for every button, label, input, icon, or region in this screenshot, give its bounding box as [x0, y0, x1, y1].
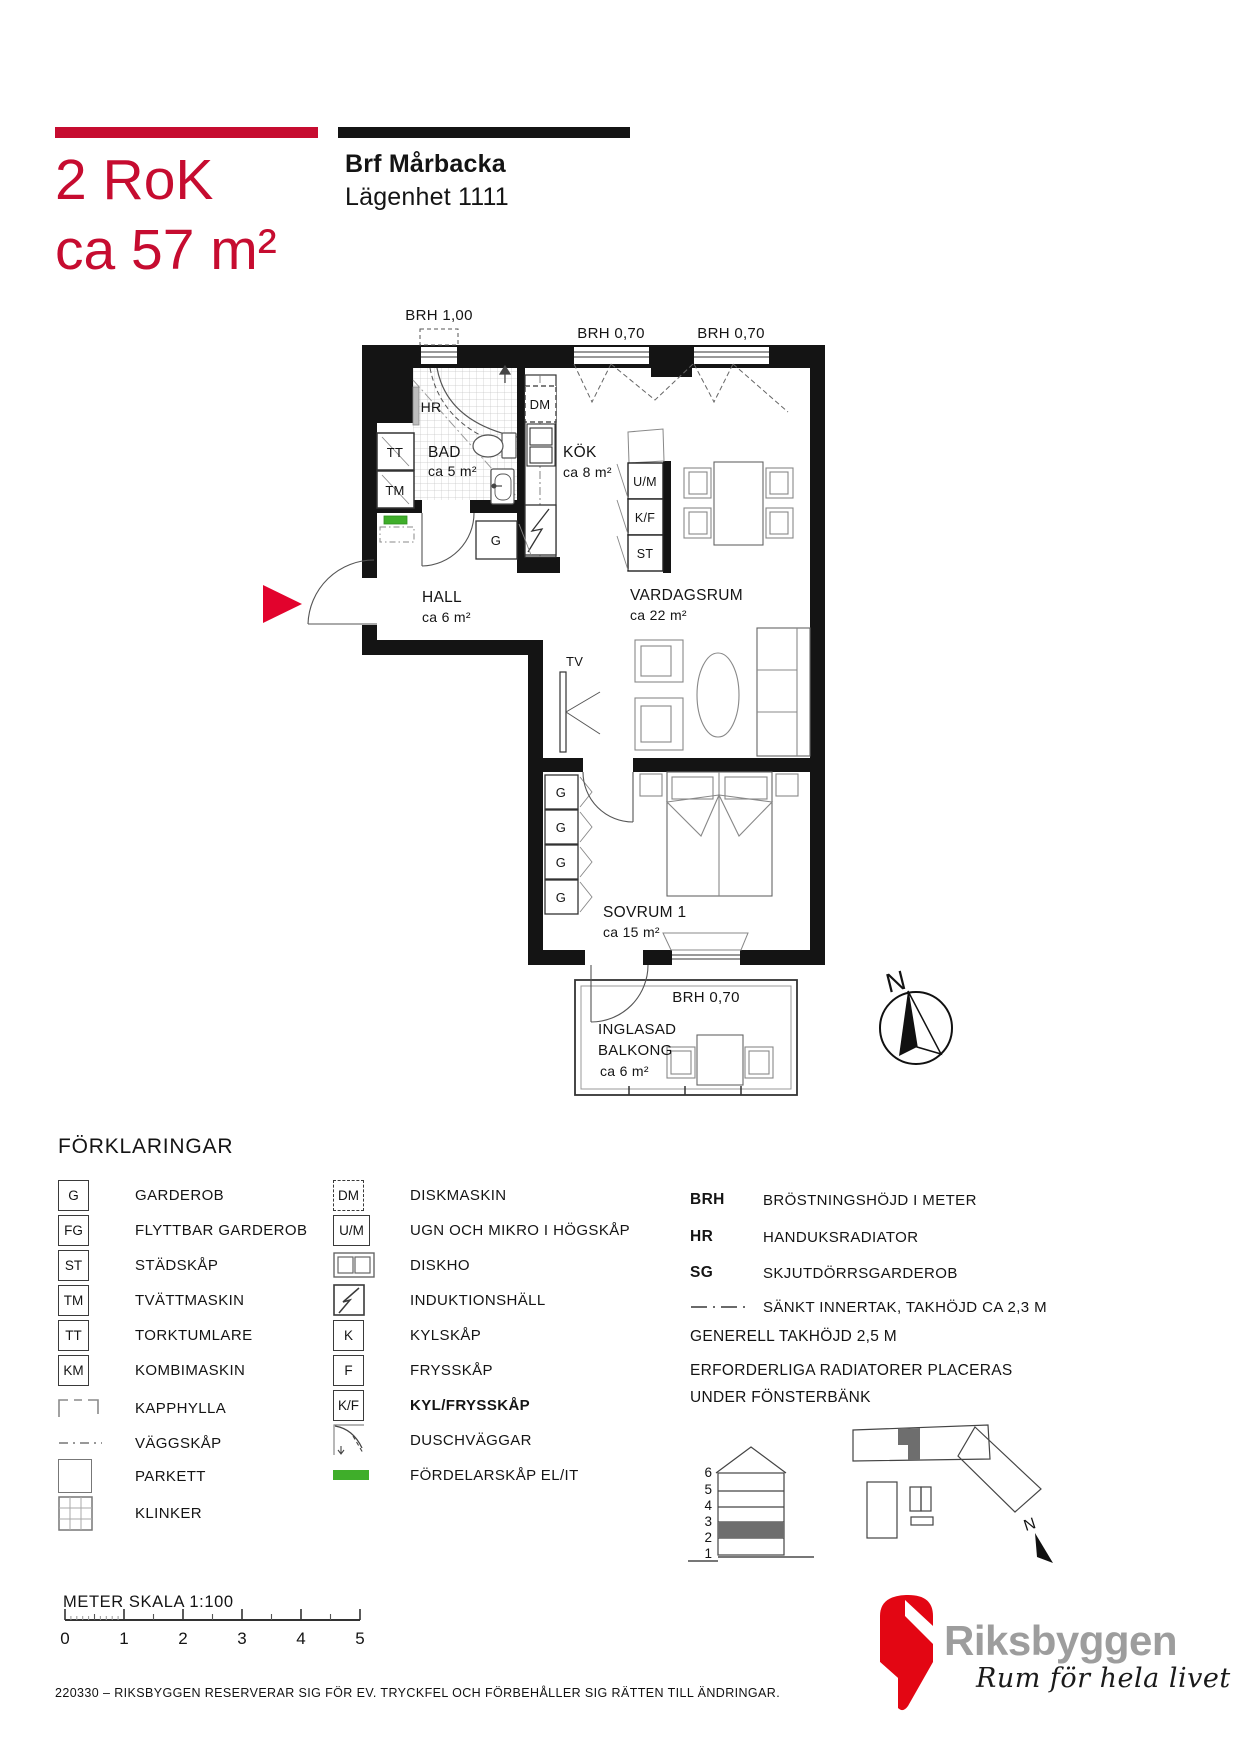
legend-label: SÄNKT INNERTAK, TAKHÖJD CA 2,3 M: [763, 1299, 1047, 1316]
site-buildings: [853, 1425, 1041, 1538]
room-name-hall: HALL: [422, 589, 462, 606]
legend-label: DISKHO: [410, 1257, 470, 1274]
scale-tick-4: 4: [296, 1629, 305, 1648]
compass: N: [880, 965, 952, 1064]
legend-item-fordelarskap: FÖRDELARSKÅP EL/IT: [333, 1458, 579, 1492]
note-radiators-2: UNDER FÖNSTERBÄNK: [690, 1389, 871, 1407]
compass-north-label: N: [883, 965, 909, 999]
legend-item-diskho: DISKHO: [333, 1248, 470, 1282]
window-brh-label: BRH 1,00: [405, 307, 472, 324]
floor-label-4: 4: [704, 1498, 712, 1513]
kapphylla-symbol: [58, 1398, 100, 1418]
room-name-balkong-1: INGLASAD: [598, 1021, 676, 1038]
kylskap-symbol: K: [333, 1320, 364, 1351]
garderob-symbol: G: [58, 1180, 89, 1211]
floor-label-3: 3: [704, 1514, 712, 1529]
floor-label-5: 5: [704, 1482, 712, 1497]
entrance-arrow: [263, 585, 302, 623]
legend-label: KYL/FRYSSKÅP: [410, 1397, 530, 1414]
legend-label: FRYSSKÅP: [410, 1362, 493, 1379]
diskmaskin-symbol: DM: [333, 1180, 364, 1211]
dining-set: [684, 462, 793, 545]
diskho-symbol: [333, 1250, 375, 1280]
legend-item-kapphylla: KAPPHYLLA: [58, 1391, 226, 1425]
legend-item-duschvaggar: DUSCHVÄGGAR: [333, 1423, 532, 1457]
ugn-mikro-symbol: U/M: [333, 1215, 370, 1246]
legend-item-klinker: KLINKER: [58, 1496, 202, 1530]
legend-item-ugn-mikro: U/M UGN OCH MIKRO I HÖGSKÅP: [333, 1213, 630, 1247]
legend-label: HANDUKSRADIATOR: [763, 1229, 918, 1246]
black-accent-bar: [338, 127, 630, 138]
floor-label-1: 1: [704, 1546, 712, 1561]
legend-label: KLINKER: [135, 1505, 202, 1522]
legend-item-stadskap: ST STÄDSKÅP: [58, 1248, 218, 1282]
sankt-innertak-symbol: [690, 1303, 748, 1311]
note-ceiling-height: GENERELL TAKHÖJD 2,5 M: [690, 1328, 897, 1346]
scale-tick-3: 3: [237, 1629, 246, 1648]
induction-hob: [525, 505, 556, 555]
legend-item-garderob: G GARDEROB: [58, 1178, 224, 1212]
page-title: 2 RoK ca 57 m²: [55, 145, 277, 285]
induktionshall-symbol: [333, 1284, 365, 1316]
apartment-number: Lägenhet 1111: [345, 183, 509, 212]
bathroom-door: [422, 513, 474, 566]
room-area-hall: ca 6 m²: [422, 609, 471, 625]
kitchen-sink: [527, 424, 555, 466]
room-area-kok: ca 8 m²: [563, 464, 612, 480]
legend-label: KYLSKÅP: [410, 1327, 481, 1344]
window-brh-label: BRH 0,70: [672, 989, 739, 1006]
legend-item-hr: HR HANDUKSRADIATOR: [690, 1220, 918, 1254]
site-north-arrow: N: [1022, 1515, 1053, 1563]
legend-label: KOMBIMASKIN: [135, 1362, 245, 1379]
armchairs: [635, 640, 683, 750]
legend-item-torktumlare: TT TORKTUMLARE: [58, 1318, 252, 1352]
legend-item-vaggskap: VÄGGSKÅP: [58, 1426, 222, 1460]
legend-item-frysskap: F FRYSSKÅP: [333, 1353, 493, 1387]
vaggskap-symbol: [58, 1439, 102, 1447]
legend-label: FÖRDELARSKÅP EL/IT: [410, 1467, 579, 1484]
kyl-frysskap-symbol: K/F: [333, 1390, 364, 1421]
scale-tick-5: 5: [355, 1629, 364, 1648]
room-area-balkong: ca 6 m²: [600, 1063, 649, 1079]
legend-item-induktionshall: INDUKTIONSHÄLL: [333, 1283, 546, 1317]
site-north-label: N: [1022, 1515, 1038, 1535]
fordelarskap-symbol: [333, 1470, 369, 1480]
window-brh-label: BRH 0,70: [697, 325, 764, 342]
disclaimer-text: 220330 – RIKSBYGGEN RESERVERAR SIG FÖR E…: [55, 1686, 780, 1700]
room-area-sovrum: ca 15 m²: [603, 924, 660, 940]
room-name-bad: BAD: [428, 444, 461, 461]
marker-g: G: [491, 533, 501, 548]
scale-tick-1: 1: [119, 1629, 128, 1648]
kombimaskin-symbol: KM: [58, 1355, 89, 1386]
marker-g1: G: [556, 785, 566, 800]
legend-item-brh: BRH BRÖSTNINGSHÖJD I METER: [690, 1183, 977, 1217]
marker-tt: TT: [387, 445, 403, 460]
balcony-furniture: [667, 1035, 773, 1085]
logo-brand-name: Riksbyggen: [944, 1617, 1177, 1665]
legend-heading: FÖRKLARINGAR: [58, 1135, 233, 1159]
riksbyggen-logo-mark: [870, 1590, 950, 1720]
marker-dm: DM: [530, 397, 551, 412]
apartment-size: ca 57 m²: [55, 215, 277, 285]
room-name-vardagsrum: VARDAGSRUM: [630, 587, 743, 604]
balcony-door: [591, 965, 648, 1022]
flyttbar-garderob-symbol: FG: [58, 1215, 89, 1246]
coffee-table: [697, 653, 739, 737]
scale-bar: METER SKALA 1:100 0 1 2 3 4 5: [50, 1585, 380, 1655]
site-plan: 6 5 4 3 2 1 N: [620, 1420, 1080, 1580]
legend-item-tvattmaskin: TM TVÄTTMASKIN: [58, 1283, 244, 1317]
double-bed: [640, 772, 798, 896]
legend-item-kyl-frysskap: K/F KYL/FRYSSKÅP: [333, 1388, 530, 1422]
room-name-balkong-2: BALKONG: [598, 1042, 673, 1059]
legend-item-diskmaskin: DM DISKMASKIN: [333, 1178, 507, 1212]
legend-label: INDUKTIONSHÄLL: [410, 1292, 546, 1309]
legend-item-flyttbar-garderob: FG FLYTTBAR GARDEROB: [58, 1213, 307, 1247]
legend-item-kylskap: K KYLSKÅP: [333, 1318, 481, 1352]
legend-label: FLYTTBAR GARDEROB: [135, 1222, 307, 1239]
bedroom-door: [583, 772, 633, 822]
marker-kf: K/F: [635, 511, 655, 525]
hr-term: HR: [690, 1228, 763, 1246]
coat-rack: [380, 527, 414, 542]
legend-label: STÄDSKÅP: [135, 1257, 218, 1274]
legend-item-sankt-innertak: SÄNKT INNERTAK, TAKHÖJD CA 2,3 M: [690, 1290, 1047, 1324]
legend-label: TVÄTTMASKIN: [135, 1292, 244, 1309]
marker-hr: HR: [421, 399, 442, 415]
bedroom: [545, 772, 798, 914]
marker-g2: G: [556, 820, 566, 835]
frysskap-symbol: F: [333, 1355, 364, 1386]
room-area-vardagsrum: ca 22 m²: [630, 607, 687, 623]
tv: [560, 672, 600, 752]
towel-radiator: [413, 387, 419, 425]
room-name-kok: KÖK: [563, 443, 597, 461]
duschvaggar-symbol: [333, 1424, 365, 1456]
marker-g3: G: [556, 855, 566, 870]
toilet: [473, 433, 516, 458]
scale-tick-0: 0: [60, 1629, 69, 1648]
legend-label: BRÖSTNINGSHÖJD I METER: [763, 1192, 977, 1209]
marker-st: ST: [637, 547, 654, 561]
bedroom-wardrobes: [545, 775, 592, 914]
floor-plan: N BRH 1,00 BRH 0,70 BRH 0,70 BRH 0,70 HR…: [240, 295, 960, 1110]
distribution-cabinet: [384, 516, 407, 524]
apartment-type: 2 RoK: [55, 145, 277, 215]
scale-label: METER SKALA 1:100: [63, 1593, 234, 1611]
bathroom-sink: [491, 469, 514, 504]
legend-label: SKJUTDÖRRSGARDEROB: [763, 1265, 958, 1282]
legend-label: GARDEROB: [135, 1187, 224, 1204]
scale-tick-2: 2: [178, 1629, 187, 1648]
legend-label: DISKMASKIN: [410, 1187, 507, 1204]
stadskap-symbol: ST: [58, 1250, 89, 1281]
logo-tagline: Rum för hela livet: [976, 1663, 1231, 1694]
legend-label: KAPPHYLLA: [135, 1400, 226, 1417]
window-brh-label: BRH 0,70: [577, 325, 644, 342]
project-name: Brf Mårbacka: [345, 150, 506, 179]
legend-label: PARKETT: [135, 1468, 206, 1485]
red-accent-bar: [55, 127, 318, 138]
floorplan-page: 2 RoK ca 57 m² Brf Mårbacka Lägenhet 111…: [0, 0, 1240, 1754]
klinker-symbol: [58, 1496, 93, 1531]
legend-label: DUSCHVÄGGAR: [410, 1432, 532, 1449]
marker-um: U/M: [633, 475, 657, 489]
apartment-location-marker: [898, 1428, 920, 1460]
note-radiators-1: ERFORDERLIGA RADIATORER PLACERAS: [690, 1362, 1013, 1380]
tvattmaskin-symbol: TM: [58, 1285, 89, 1316]
legend-item-sg: SG SKJUTDÖRRSGARDEROB: [690, 1256, 958, 1290]
torktumlare-symbol: TT: [58, 1320, 89, 1351]
marker-tm: TM: [385, 483, 404, 498]
sofa: [757, 628, 810, 756]
marker-g4: G: [556, 890, 566, 905]
room-name-sovrum: SOVRUM 1: [603, 904, 686, 921]
parkett-symbol: [58, 1459, 92, 1493]
floor-label-2: 2: [704, 1530, 712, 1545]
legend-label: VÄGGSKÅP: [135, 1435, 222, 1452]
room-area-bad: ca 5 m²: [428, 463, 477, 479]
marker-tv: TV: [566, 654, 583, 669]
legend-label: TORKTUMLARE: [135, 1327, 252, 1344]
sg-term: SG: [690, 1264, 763, 1282]
brh-term: BRH: [690, 1191, 763, 1209]
floor-label-6: 6: [704, 1465, 712, 1480]
legend-label: UGN OCH MIKRO I HÖGSKÅP: [410, 1222, 630, 1239]
legend-item-kombimaskin: KM KOMBIMASKIN: [58, 1353, 245, 1387]
legend-item-parkett: PARKETT: [58, 1459, 206, 1493]
